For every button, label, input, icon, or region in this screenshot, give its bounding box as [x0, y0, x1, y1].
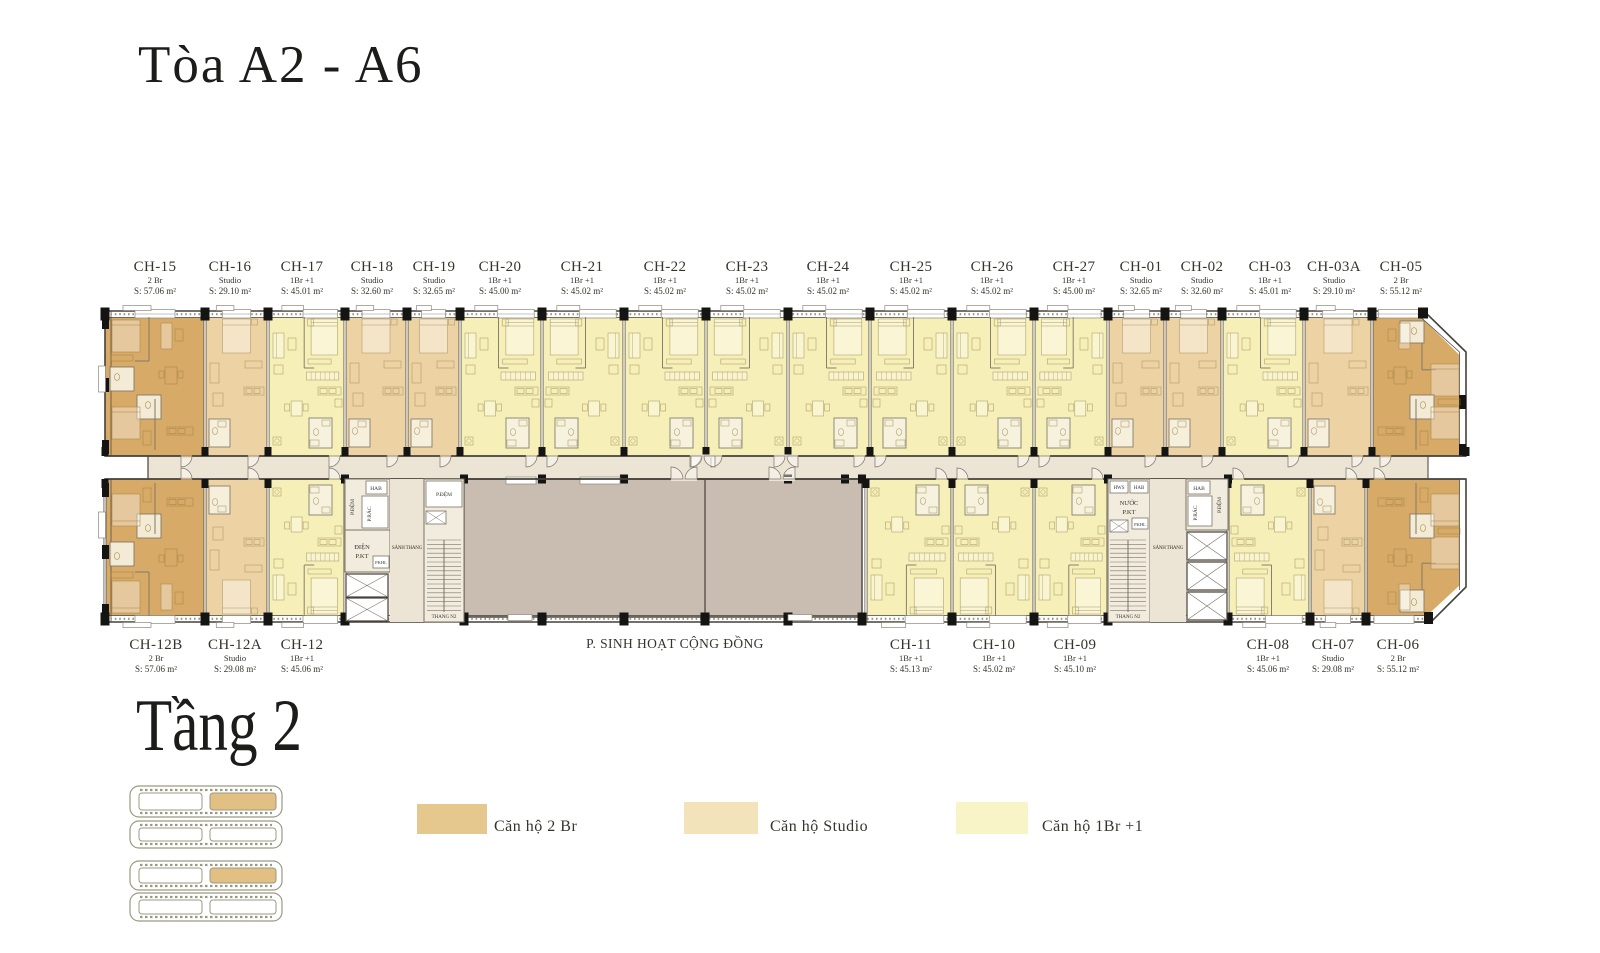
svg-text:1Br +1: 1Br +1 — [653, 275, 677, 285]
svg-text:P.KT: P.KT — [1122, 509, 1135, 516]
svg-text:Tầng 2: Tầng 2 — [136, 685, 302, 767]
svg-text:S: 45.06 m²: S: 45.06 m² — [1247, 664, 1289, 674]
svg-text:S: 45.02 m²: S: 45.02 m² — [644, 286, 686, 296]
svg-text:1Br +1: 1Br +1 — [570, 275, 594, 285]
svg-text:ĐIỆN: ĐIỆN — [354, 543, 370, 551]
svg-text:P.RÁC: P.RÁC — [365, 506, 373, 521]
svg-text:CH-20: CH-20 — [479, 259, 522, 275]
svg-text:Căn hộ 1Br +1: Căn hộ 1Br +1 — [1042, 818, 1143, 835]
svg-text:CH-08: CH-08 — [1247, 637, 1290, 653]
svg-text:P.RÁC: P.RÁC — [1191, 505, 1199, 520]
svg-text:CH-03A: CH-03A — [1307, 259, 1361, 275]
svg-text:1Br +1: 1Br +1 — [488, 275, 512, 285]
svg-text:Studio: Studio — [224, 653, 246, 663]
svg-text:1Br +1: 1Br +1 — [735, 275, 759, 285]
svg-text:CH-07: CH-07 — [1312, 637, 1355, 653]
svg-text:S: 29.08 m²: S: 29.08 m² — [214, 664, 256, 674]
svg-text:S: 29.10 m²: S: 29.10 m² — [1313, 286, 1355, 296]
svg-text:CH-17: CH-17 — [281, 259, 324, 275]
svg-text:PKHL: PKHL — [375, 560, 387, 565]
svg-text:S: 55.12 m²: S: 55.12 m² — [1377, 664, 1419, 674]
svg-text:Studio: Studio — [423, 275, 445, 285]
svg-text:CH-15: CH-15 — [134, 259, 177, 275]
svg-text:2 Br: 2 Br — [149, 653, 164, 663]
svg-text:SẢNH THANG: SẢNH THANG — [1153, 545, 1184, 551]
svg-text:S: 32.65 m²: S: 32.65 m² — [1120, 286, 1162, 296]
svg-text:S: 57.06 m²: S: 57.06 m² — [134, 286, 176, 296]
svg-text:S: 45.06 m²: S: 45.06 m² — [281, 664, 323, 674]
svg-text:HAB: HAB — [370, 486, 382, 492]
svg-text:1Br +1: 1Br +1 — [1258, 275, 1282, 285]
svg-text:Studio: Studio — [361, 275, 383, 285]
svg-text:1Br +1: 1Br +1 — [899, 653, 923, 663]
svg-text:THANG N2: THANG N2 — [432, 615, 457, 620]
svg-text:S: 45.01 m²: S: 45.01 m² — [1249, 286, 1291, 296]
svg-text:CH-12A: CH-12A — [208, 637, 262, 653]
svg-text:S: 29.10 m²: S: 29.10 m² — [209, 286, 251, 296]
svg-text:Studio: Studio — [1191, 275, 1213, 285]
svg-text:Căn hộ Studio: Căn hộ Studio — [770, 818, 868, 835]
svg-text:CH-05: CH-05 — [1380, 259, 1423, 275]
svg-text:CH-06: CH-06 — [1377, 637, 1420, 653]
svg-text:1Br +1: 1Br +1 — [899, 275, 923, 285]
svg-text:NƯỚC: NƯỚC — [1120, 499, 1139, 507]
svg-text:S: 45.02 m²: S: 45.02 m² — [726, 286, 768, 296]
svg-text:CH-09: CH-09 — [1054, 637, 1097, 653]
svg-text:HAB: HAB — [1193, 486, 1205, 492]
svg-text:CH-27: CH-27 — [1053, 259, 1096, 275]
svg-text:PKHL: PKHL — [1134, 522, 1146, 527]
svg-text:THANG N2: THANG N2 — [1116, 615, 1141, 620]
svg-text:S: 45.00 m²: S: 45.00 m² — [479, 286, 521, 296]
svg-text:CH-10: CH-10 — [973, 637, 1016, 653]
svg-text:P.ĐỆM: P.ĐỆM — [1215, 497, 1223, 513]
svg-text:S: 55.12 m²: S: 55.12 m² — [1380, 286, 1422, 296]
svg-text:S: 32.60 m²: S: 32.60 m² — [1181, 286, 1223, 296]
svg-text:Studio: Studio — [219, 275, 241, 285]
svg-text:1Br +1: 1Br +1 — [982, 653, 1006, 663]
svg-text:Căn hộ 2 Br: Căn hộ 2 Br — [494, 818, 577, 835]
svg-text:CH-26: CH-26 — [971, 259, 1014, 275]
svg-text:CH-01: CH-01 — [1120, 259, 1163, 275]
svg-text:CH-21: CH-21 — [561, 259, 604, 275]
svg-text:S: 45.02 m²: S: 45.02 m² — [971, 286, 1013, 296]
svg-text:S: 32.60 m²: S: 32.60 m² — [351, 286, 393, 296]
svg-text:CH-12: CH-12 — [281, 637, 324, 653]
svg-text:S: 57.06 m²: S: 57.06 m² — [135, 664, 177, 674]
svg-text:S: 45.00 m²: S: 45.00 m² — [1053, 286, 1095, 296]
svg-text:CH-24: CH-24 — [807, 259, 850, 275]
svg-text:S: 45.13 m²: S: 45.13 m² — [890, 664, 932, 674]
svg-text:CH-22: CH-22 — [644, 259, 687, 275]
svg-text:S: 32.65 m²: S: 32.65 m² — [413, 286, 455, 296]
svg-text:CH-12B: CH-12B — [129, 637, 182, 653]
svg-text:P.ĐỆM: P.ĐỆM — [436, 490, 452, 498]
svg-text:Tòa A2 - A6: Tòa A2 - A6 — [138, 36, 424, 94]
svg-text:1Br +1: 1Br +1 — [290, 275, 314, 285]
svg-text:CH-02: CH-02 — [1181, 259, 1224, 275]
svg-text:P.ĐỆM: P.ĐỆM — [348, 499, 356, 515]
svg-text:CH-16: CH-16 — [209, 259, 252, 275]
svg-text:CH-25: CH-25 — [890, 259, 933, 275]
svg-text:CH-23: CH-23 — [726, 259, 769, 275]
svg-text:CH-11: CH-11 — [890, 637, 932, 653]
svg-text:1Br +1: 1Br +1 — [1062, 275, 1086, 285]
svg-text:1Br +1: 1Br +1 — [1063, 653, 1087, 663]
svg-text:1Br +1: 1Br +1 — [980, 275, 1004, 285]
svg-text:HWS: HWS — [1113, 486, 1124, 491]
svg-text:2 Br: 2 Br — [1394, 275, 1409, 285]
svg-text:2 Br: 2 Br — [1391, 653, 1406, 663]
svg-text:P.KT: P.KT — [355, 553, 368, 560]
svg-text:CH-03: CH-03 — [1249, 259, 1292, 275]
svg-text:HAB: HAB — [1134, 486, 1145, 491]
svg-text:S: 29.08 m²: S: 29.08 m² — [1312, 664, 1354, 674]
svg-text:S: 45.02 m²: S: 45.02 m² — [973, 664, 1015, 674]
svg-text:CH-19: CH-19 — [413, 259, 456, 275]
svg-text:Studio: Studio — [1130, 275, 1152, 285]
svg-text:S: 45.02 m²: S: 45.02 m² — [890, 286, 932, 296]
svg-text:1Br +1: 1Br +1 — [816, 275, 840, 285]
svg-text:1Br +1: 1Br +1 — [1256, 653, 1280, 663]
svg-text:1Br +1: 1Br +1 — [290, 653, 314, 663]
svg-text:Studio: Studio — [1323, 275, 1345, 285]
svg-text:CH-18: CH-18 — [351, 259, 394, 275]
svg-text:S: 45.10 m²: S: 45.10 m² — [1054, 664, 1096, 674]
svg-text:S: 45.02 m²: S: 45.02 m² — [807, 286, 849, 296]
svg-text:S: 45.01 m²: S: 45.01 m² — [281, 286, 323, 296]
svg-text:S: 45.02 m²: S: 45.02 m² — [561, 286, 603, 296]
svg-text:Studio: Studio — [1322, 653, 1344, 663]
svg-text:P. SINH HOẠT CỘNG ĐỒNG: P. SINH HOẠT CỘNG ĐỒNG — [586, 636, 764, 651]
svg-text:SẢNH THANG: SẢNH THANG — [392, 545, 423, 551]
svg-text:2 Br: 2 Br — [148, 275, 163, 285]
